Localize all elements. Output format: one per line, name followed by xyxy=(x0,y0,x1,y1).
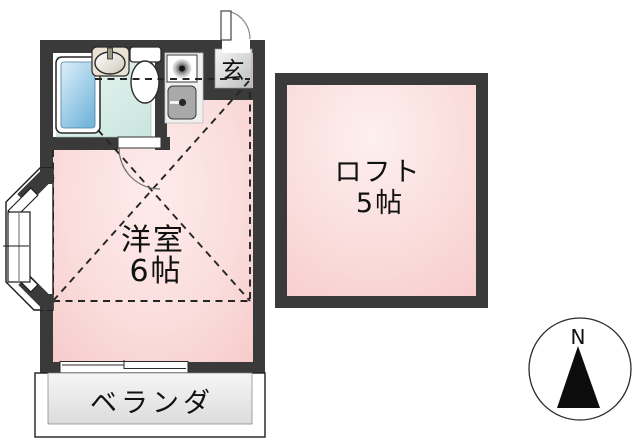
wall-bathroom-bottom xyxy=(40,137,118,150)
wall-kitchen-entrance xyxy=(203,40,215,100)
sink-drain-icon xyxy=(179,99,186,106)
basin-faucet-icon xyxy=(108,48,113,59)
stove-burner-center xyxy=(179,66,185,72)
entrance-label: 玄 xyxy=(222,58,245,84)
entrance: 玄 xyxy=(215,11,252,88)
loft-room: ロフト 5帖 xyxy=(275,73,488,308)
kitchen xyxy=(165,53,203,123)
toilet-bowl-icon xyxy=(131,61,159,103)
bathroom-door-icon xyxy=(118,137,161,148)
loft-name: ロフト xyxy=(335,157,422,188)
living-room-size: 6帖 xyxy=(129,254,182,289)
floor-plan-canvas: 玄 xyxy=(0,0,640,448)
bay-wall-join-bottom xyxy=(40,294,53,310)
wall-right xyxy=(253,40,265,375)
bay-window xyxy=(3,167,56,311)
compass-north-label: N xyxy=(571,325,586,349)
entrance-door-swing-arc xyxy=(231,12,250,39)
bay-wall-join-top xyxy=(40,168,53,184)
loft-size: 5帖 xyxy=(356,188,404,219)
wall-below-entrance xyxy=(215,88,253,100)
sliding-window xyxy=(60,360,188,373)
floor-plan-page: 玄 xyxy=(0,0,640,448)
bathtub-water xyxy=(61,62,95,128)
bathroom xyxy=(53,47,161,137)
compass: N xyxy=(529,318,631,420)
veranda: ベランダ xyxy=(35,373,265,437)
living-room-name: 洋室 xyxy=(121,223,185,258)
veranda-label: ベランダ xyxy=(90,388,214,419)
entrance-door-opening xyxy=(222,40,250,53)
wall-left-upper xyxy=(40,40,53,172)
entrance-door-icon xyxy=(221,11,231,40)
toilet-tank-icon xyxy=(130,47,161,62)
main-unit: 玄 xyxy=(3,11,265,375)
